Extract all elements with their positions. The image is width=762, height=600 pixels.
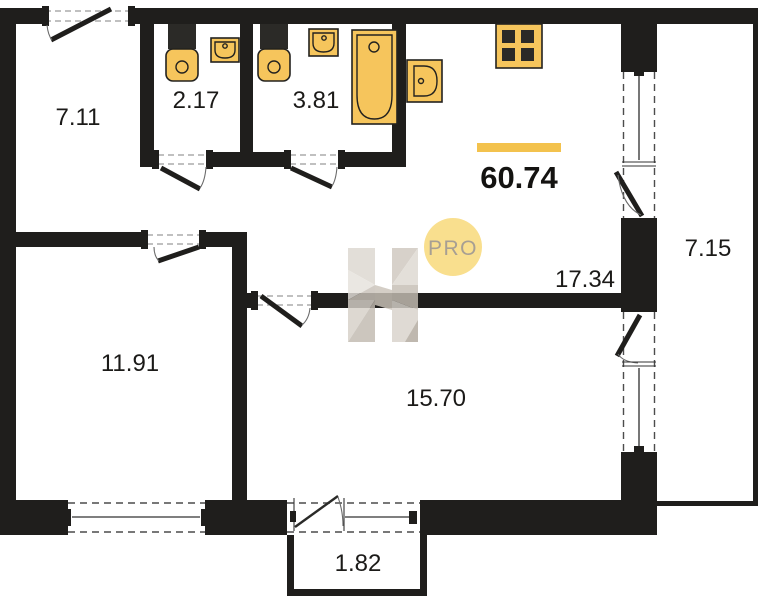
room-area-label-bathroom: 3.81 bbox=[293, 87, 340, 114]
wall-segment bbox=[240, 24, 253, 154]
window-tick bbox=[290, 511, 296, 522]
wall-segment bbox=[0, 500, 68, 535]
wall-segment bbox=[232, 232, 247, 502]
toilet-icon bbox=[166, 24, 198, 81]
wall-segment bbox=[208, 152, 290, 167]
stove-icon bbox=[496, 24, 542, 68]
room-area-label-balcony: 1.82 bbox=[335, 550, 382, 577]
door-jamb bbox=[311, 291, 318, 310]
wall-segment bbox=[621, 452, 657, 504]
door-leaf bbox=[295, 496, 338, 527]
bathtub-icon bbox=[352, 30, 397, 124]
door-jamb bbox=[338, 150, 345, 169]
wall-segment bbox=[0, 8, 16, 535]
bathroom-door bbox=[284, 150, 345, 187]
door-jamb bbox=[206, 150, 213, 169]
loggia-outer-wall bbox=[753, 24, 758, 506]
window-tick bbox=[634, 69, 644, 76]
total-area: 60.74 bbox=[477, 143, 561, 195]
door-jamb bbox=[42, 6, 49, 26]
door-jamb bbox=[152, 150, 159, 169]
balcony-wall bbox=[287, 535, 294, 596]
h-logo-watermark bbox=[348, 248, 418, 342]
wall-segment bbox=[621, 24, 657, 72]
balcony-wall bbox=[420, 535, 427, 596]
door-leaf bbox=[291, 168, 332, 187]
wall-segment bbox=[140, 24, 154, 155]
balcony-wall bbox=[287, 589, 427, 596]
bedroom-door bbox=[141, 230, 206, 261]
entrance-door bbox=[42, 6, 135, 40]
window-tick bbox=[634, 446, 644, 453]
door-leaf bbox=[616, 172, 642, 216]
door-jamb bbox=[141, 230, 148, 249]
total-area-label: 60.74 bbox=[480, 160, 558, 195]
wall-segment bbox=[340, 152, 406, 167]
door-jamb bbox=[284, 150, 291, 169]
pro-badge-text: PRO bbox=[428, 237, 478, 260]
total-area-accent-bar bbox=[477, 143, 561, 152]
room-area-label-kitchen-living: 17.34 bbox=[555, 266, 615, 293]
wall-segment bbox=[621, 218, 657, 312]
loggia-window-door-lower bbox=[617, 312, 656, 453]
kitchen-sink-icon bbox=[407, 60, 442, 102]
door-leaf bbox=[261, 296, 302, 326]
door-jamb bbox=[128, 6, 135, 26]
door-jamb bbox=[251, 291, 258, 310]
loggia-outer-wall bbox=[657, 501, 758, 506]
floor-plan: PRO 60.74 7.11 2.17 3.81 17.34 11.91 15.… bbox=[0, 0, 762, 600]
loggia-window-door-upper bbox=[616, 69, 656, 218]
pro-badge: PRO bbox=[424, 218, 482, 276]
room-area-label-room: 15.70 bbox=[406, 385, 466, 412]
sink-icon bbox=[309, 29, 338, 56]
door-leaf bbox=[617, 315, 640, 356]
wall-segment bbox=[205, 500, 287, 535]
door-leaf bbox=[161, 168, 200, 189]
wall-segment bbox=[16, 232, 147, 247]
watermark: PRO bbox=[348, 218, 482, 342]
room-door bbox=[251, 291, 318, 326]
wc-door bbox=[152, 150, 213, 189]
room-area-label-wc: 2.17 bbox=[173, 87, 220, 114]
wall-segment bbox=[420, 500, 657, 535]
bedroom-window bbox=[63, 503, 209, 532]
sink-icon bbox=[211, 38, 239, 62]
room-area-label-hallway: 7.11 bbox=[56, 104, 101, 131]
door-leaf bbox=[51, 9, 111, 40]
room-area-label-bedroom: 11.91 bbox=[101, 350, 159, 377]
window-tick bbox=[409, 511, 417, 524]
window-tick bbox=[63, 509, 71, 526]
room-area-label-loggia: 7.15 bbox=[685, 235, 732, 262]
wall-segment bbox=[130, 8, 758, 24]
door-leaf bbox=[158, 247, 199, 261]
toilet-icon bbox=[258, 24, 290, 81]
floor-plan-drawing: PRO 60.74 7.11 2.17 3.81 17.34 11.91 15.… bbox=[0, 0, 762, 600]
window-tick bbox=[201, 509, 209, 526]
balcony-door-window bbox=[287, 496, 420, 532]
door-jamb bbox=[199, 230, 206, 249]
